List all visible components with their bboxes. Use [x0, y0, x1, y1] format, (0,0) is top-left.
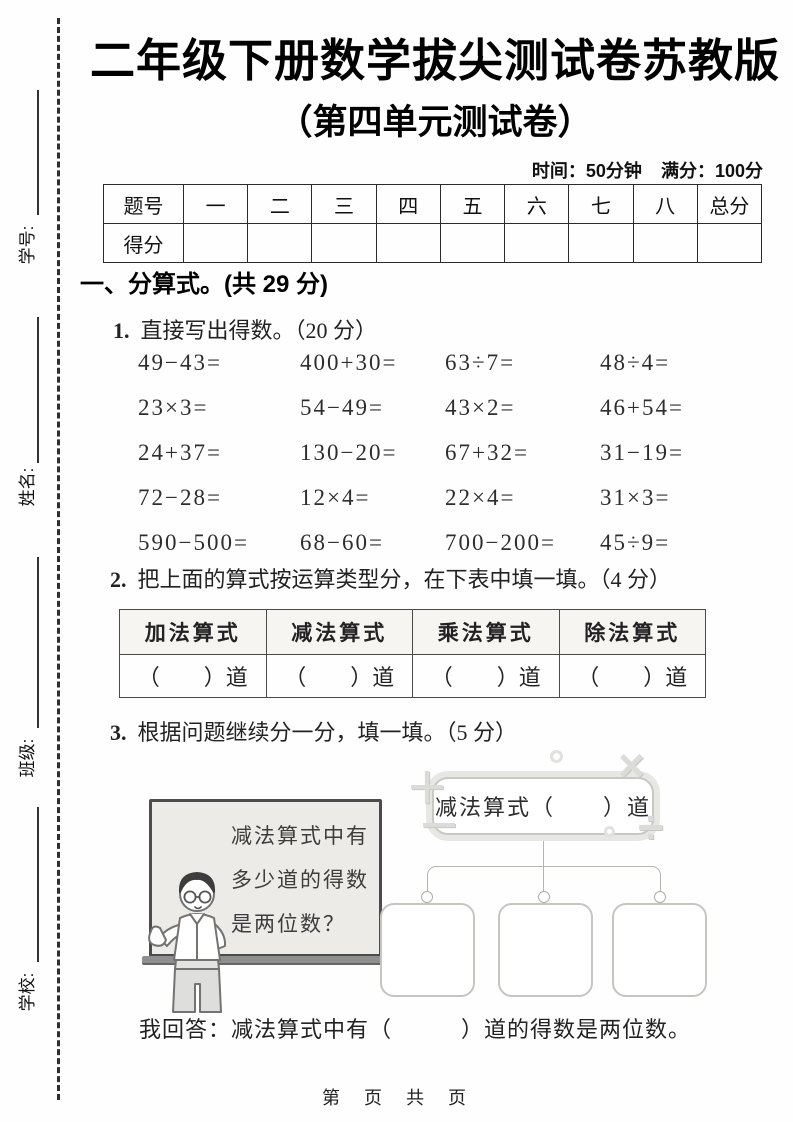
connector-middle-drop	[543, 867, 544, 894]
page-footer: 第 页 共 页	[0, 1084, 793, 1110]
score-empty-cell	[569, 224, 633, 263]
question-2-number: 2.	[110, 567, 127, 592]
school-blank-line	[37, 807, 39, 962]
fill-in-cell: （ ）道	[413, 655, 560, 698]
flowchart-answer-box	[612, 903, 707, 997]
math-problem: 400+30=	[300, 350, 445, 395]
math-problem: 31×3=	[600, 485, 752, 530]
score-empty-cell	[248, 224, 312, 263]
connector-stem-line	[543, 836, 544, 867]
page-subtitle: （第四单元测试卷）	[78, 94, 792, 145]
score-empty-cell	[633, 224, 697, 263]
multiplication-col-header: 乘法算式	[413, 610, 560, 655]
question-3-number: 3.	[110, 720, 127, 745]
score-table: 题号 一 二 三 四 五 六 七 八 总分 得分	[103, 184, 762, 263]
math-problem: 72−28=	[138, 485, 300, 530]
question-2: 2.把上面的算式按运算类型分，在下表中填一填。（4 分）	[110, 562, 671, 594]
score-empty-cell	[505, 224, 569, 263]
test-paper-page: 学号: 姓名: 班级: 学校: 二年级下册数学拔尖测试卷苏教版 （第四单元测试卷…	[0, 0, 793, 1122]
math-problem: 54−49=	[300, 395, 445, 440]
blackboard-line: 减法算式中有	[231, 814, 369, 858]
flowchart-answer-box	[498, 903, 593, 997]
score-col-header: 六	[505, 185, 569, 224]
classification-fill-row: （ ）道 （ ）道 （ ）道 （ ）道	[120, 655, 706, 698]
class-blank-line	[37, 557, 39, 728]
times-icon: ×	[618, 742, 645, 788]
fill-in-cell: （ ）道	[266, 655, 413, 698]
classification-header-row: 加法算式 减法算式 乘法算式 除法算式	[120, 610, 706, 655]
math-problem: 31−19=	[600, 440, 752, 485]
name-label: 姓名:	[17, 435, 39, 539]
score-empty-cell	[697, 224, 761, 263]
question-1: 1.直接写出得数。（20 分）	[113, 313, 377, 345]
math-problem: 67+32=	[445, 440, 600, 485]
connector-node-circle	[421, 891, 433, 903]
math-problem: 63÷7=	[445, 350, 600, 395]
exam-meta: 时间：50分钟 满分：100分	[532, 157, 763, 183]
score-value-row: 得分	[104, 224, 762, 263]
flowchart-answer-box	[380, 903, 475, 997]
score-empty-cell	[312, 224, 376, 263]
math-problem: 49−43=	[138, 350, 300, 395]
score-empty-cell	[376, 224, 440, 263]
subtraction-col-header: 减法算式	[266, 610, 413, 655]
decor-circle	[550, 750, 563, 763]
connector-node-circle	[538, 891, 550, 903]
score-col-header: 五	[440, 185, 504, 224]
score-col-header: 一	[184, 185, 248, 224]
score-col-header: 七	[569, 185, 633, 224]
question-3: 3.根据问题继续分一分，填一填。（5 分）	[110, 715, 517, 747]
score-corner-cell: 题号	[104, 185, 184, 224]
section-heading: 一、分算式。(共 29 分)	[80, 264, 328, 299]
fill-in-cell: （ ）道	[559, 655, 706, 698]
time-info: 时间：50分钟	[532, 161, 642, 181]
class-label: 班级:	[17, 706, 39, 810]
student-id-label: 学号:	[17, 193, 39, 297]
question-2-text: 把上面的算式按运算类型分，在下表中填一填。（4 分）	[138, 567, 672, 592]
fill-in-cell: （ ）道	[120, 655, 267, 698]
score-col-header: 三	[312, 185, 376, 224]
score-empty-cell	[184, 224, 248, 263]
decor-circle	[604, 826, 615, 837]
divide-icon: ÷	[638, 804, 663, 850]
score-col-header: 总分	[697, 185, 761, 224]
math-problem: 23×3=	[138, 395, 300, 440]
math-problem: 130−20=	[300, 440, 445, 485]
addition-col-header: 加法算式	[120, 610, 267, 655]
connector-node-circle	[654, 891, 666, 903]
page-title: 二年级下册数学拔尖测试卷苏教版	[78, 24, 792, 89]
minus-icon: －	[418, 806, 460, 848]
flowchart-top-label: 减法算式（ ）道	[435, 790, 651, 822]
teacher-figure-icon	[136, 864, 258, 1014]
math-problem: 43×2=	[445, 395, 600, 440]
math-problem: 46+54=	[600, 395, 752, 440]
score-col-header: 四	[376, 185, 440, 224]
margin-dashed-divider	[57, 18, 60, 1100]
answer-sentence: 我回答：减法算式中有（ ）道的得数是两位数。	[139, 1012, 691, 1044]
mental-math-grid: 49−43= 400+30= 63÷7= 48÷4= 23×3= 54−49= …	[138, 350, 754, 575]
math-problem: 24+37=	[138, 440, 300, 485]
classification-table: 加法算式 减法算式 乘法算式 除法算式 （ ）道 （ ）道 （ ）道 （ ）道	[119, 609, 706, 698]
question-1-text: 直接写出得数。（20 分）	[141, 318, 378, 343]
score-col-header: 二	[248, 185, 312, 224]
score-col-header: 八	[633, 185, 697, 224]
question-1-number: 1.	[113, 318, 130, 343]
math-problem: 22×4=	[445, 485, 600, 530]
score-empty-cell	[440, 224, 504, 263]
school-label: 学校:	[17, 940, 39, 1044]
math-problem: 12×4=	[300, 485, 445, 530]
division-col-header: 除法算式	[559, 610, 706, 655]
connector-branch-line	[427, 866, 661, 894]
question-3-text: 根据问题继续分一分，填一填。（5 分）	[138, 720, 518, 745]
score-header-row: 题号 一 二 三 四 五 六 七 八 总分	[104, 185, 762, 224]
full-score-info: 满分：100分	[661, 161, 763, 181]
math-problem: 48÷4=	[600, 350, 752, 395]
score-row-label: 得分	[104, 224, 184, 263]
